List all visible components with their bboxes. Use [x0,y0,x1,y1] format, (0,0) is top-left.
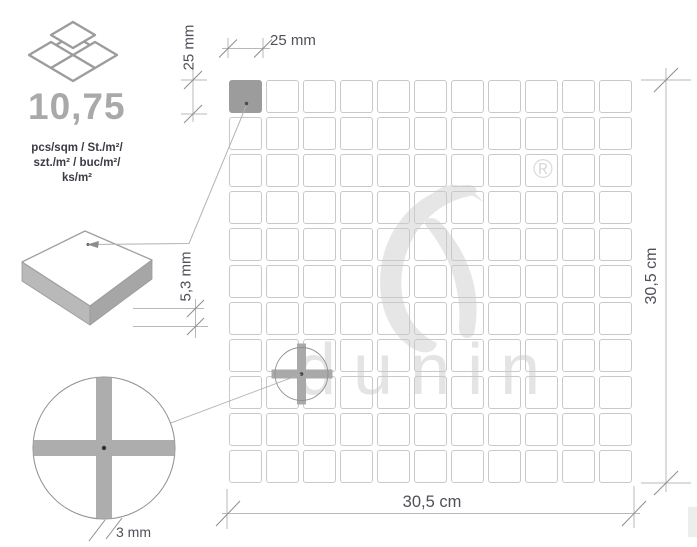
mosaic-chip [599,228,632,261]
mosaic-chip [377,117,410,150]
density-units: pcs/sqm / St./m²/ szt./m² / buc/m²/ ks/m… [18,141,136,186]
mosaic-chip [377,302,410,335]
mosaic-chip [303,265,336,298]
sheet-width-label: 30,5 cm [392,493,472,512]
mosaic-chip [451,191,484,224]
mosaic-chip [451,154,484,187]
page-edge-artifact [688,507,697,537]
mosaic-chip [340,413,373,446]
mosaic-chip [562,191,595,224]
mosaic-chip [488,450,521,483]
mosaic-chip [562,154,595,187]
mosaic-chip [599,80,632,113]
mosaic-chip [414,302,447,335]
mosaic-chip [525,413,558,446]
mosaic-chip [525,117,558,150]
mosaic-chip [599,154,632,187]
mosaic-chip [303,302,336,335]
mosaic-chip [266,376,299,409]
highlighted-chip [229,80,262,113]
mosaic-chip [525,154,558,187]
mosaic-chip [488,376,521,409]
mosaic-chip [414,376,447,409]
mosaic-chip [451,376,484,409]
mosaic-chip [377,450,410,483]
mosaic-chip [488,117,521,150]
mosaic-chip [414,265,447,298]
density-units-line1: pcs/sqm / St./m²/ [18,141,136,156]
mosaic-chip [340,191,373,224]
mosaic-chip [488,228,521,261]
mosaic-chip [562,450,595,483]
mosaic-chip [377,413,410,446]
mosaic-chip [266,228,299,261]
mosaic-chip [229,265,262,298]
mosaic-chip [451,265,484,298]
mosaic-grid [229,80,632,483]
mosaic-chip [377,265,410,298]
mosaic-chip [414,154,447,187]
sheet-height-label: 30,5 cm [643,240,661,312]
mosaic-chip [488,80,521,113]
mosaic-chip [562,376,595,409]
mosaic-chip [562,228,595,261]
mosaic-chip [525,450,558,483]
mosaic-chip [414,339,447,372]
mosaic-chip [414,191,447,224]
mosaic-chip [525,376,558,409]
mosaic-chip [414,450,447,483]
mosaic-chip [562,265,595,298]
mosaic-chip [414,228,447,261]
mosaic-chip [229,228,262,261]
mosaic-chip [488,191,521,224]
mosaic-chip [599,450,632,483]
mosaic-chip [266,191,299,224]
mosaic-chip [229,302,262,335]
density-units-line3: ks/m² [18,171,136,186]
chip-height-label: 25 mm [181,18,198,78]
mosaic-chip [303,339,336,372]
mosaic-chip [488,154,521,187]
mosaic-chip [303,376,336,409]
mosaic-chip [377,80,410,113]
mosaic-chip [303,413,336,446]
mosaic-chip [303,80,336,113]
mosaic-chip [451,228,484,261]
mosaic-chip [562,339,595,372]
mosaic-chip [377,228,410,261]
mosaic-chip [340,228,373,261]
mosaic-chip [599,376,632,409]
mosaic-chip [451,80,484,113]
mosaic-chip [303,191,336,224]
mosaic-chip [488,413,521,446]
mosaic-chip [525,302,558,335]
density-value: 10,75 [28,86,126,128]
mosaic-chip [414,80,447,113]
mosaic-chip [266,339,299,372]
mosaic-chip [377,339,410,372]
mosaic-spec-sheet: dunin ® [0,0,697,547]
thickness-label: 5,3 mm [178,242,195,312]
mosaic-chip [266,117,299,150]
mosaic-chip [229,376,262,409]
mosaic-chip [229,413,262,446]
mosaic-chip [266,302,299,335]
mosaic-chip [562,80,595,113]
mosaic-chip [488,339,521,372]
mosaic-chip [451,450,484,483]
mosaic-chip [599,339,632,372]
mosaic-chip [377,191,410,224]
mosaic-chip [340,265,373,298]
mosaic-chip [303,154,336,187]
mosaic-chip [525,80,558,113]
mosaic-chip [340,302,373,335]
mosaic-chip [266,265,299,298]
mosaic-chip [229,154,262,187]
mosaic-chip [562,117,595,150]
mosaic-chip [340,339,373,372]
mosaic-chip [266,80,299,113]
mosaic-chip [599,413,632,446]
mosaic-chip [340,80,373,113]
density-units-line2: szt./m² / buc/m²/ [18,156,136,171]
mosaic-chip [562,302,595,335]
mosaic-chip [414,117,447,150]
mosaic-chip [340,450,373,483]
mosaic-chip [340,376,373,409]
mosaic-chip [377,154,410,187]
mosaic-chip [266,450,299,483]
mosaic-chip [229,191,262,224]
mosaic-chip [451,117,484,150]
mosaic-chip [525,339,558,372]
mosaic-chip [229,339,262,372]
mosaic-chip [303,228,336,261]
mosaic-chip [229,450,262,483]
mosaic-chip [303,450,336,483]
mosaic-chip [488,265,521,298]
mosaic-chip [599,191,632,224]
mosaic-chip [562,413,595,446]
mosaic-chip [266,413,299,446]
mosaic-chip [525,228,558,261]
mosaic-chip [488,302,521,335]
chip-width-label: 25 mm [270,32,316,49]
mosaic-chip [266,154,299,187]
mosaic-chip [340,117,373,150]
mosaic-chip [525,191,558,224]
mosaic-chip [525,265,558,298]
mosaic-chip [451,413,484,446]
joint-width-label: 3 mm [116,524,151,540]
mosaic-chip [599,117,632,150]
mosaic-chip [340,154,373,187]
mosaic-chip [599,265,632,298]
mosaic-chip [303,117,336,150]
mosaic-chip [451,339,484,372]
mosaic-chip [599,302,632,335]
mosaic-chip [377,376,410,409]
mosaic-chip [229,117,262,150]
mosaic-chip [414,413,447,446]
mosaic-chip [451,302,484,335]
